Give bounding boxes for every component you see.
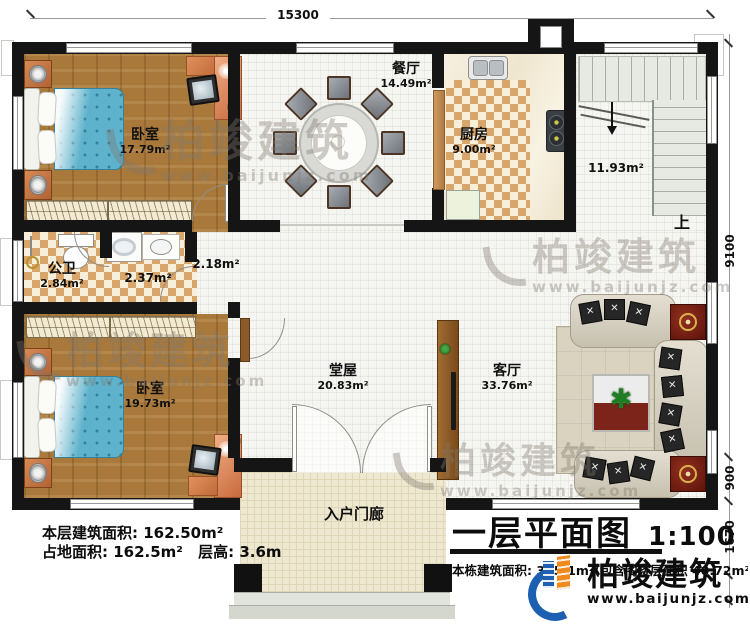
pillow: [37, 130, 57, 165]
sofa-cushion: [661, 375, 684, 398]
brand-text: 柏竣建筑 www.baijunjz.com: [587, 558, 750, 607]
stats-land-area: 占地面积: 162.5m²: [42, 543, 183, 561]
wardrobe: [110, 316, 196, 338]
room-name: 堂屋: [306, 364, 380, 380]
stats-storey-height: 层高: 3.6m: [198, 543, 281, 561]
wardrobe: [26, 200, 108, 222]
room-label-porch: 入户门廊: [298, 506, 410, 523]
room-label-kitchen: 厨房 9.00m²: [442, 128, 506, 156]
logo-swoosh-icon: [521, 560, 589, 628]
room-label-hall: 堂屋 20.83m²: [306, 364, 380, 392]
window: [707, 76, 717, 144]
room-name: 餐厅: [376, 62, 436, 78]
dimension-label-top: 15300: [266, 8, 330, 22]
sofa-cushion: [607, 461, 631, 485]
pillow: [37, 418, 57, 453]
dining-chair: [327, 76, 351, 100]
brand-website: www.baijunjz.com: [587, 593, 750, 607]
vanity-sink: [142, 234, 180, 260]
nightstand-lamp: [24, 60, 52, 88]
pillow: [37, 92, 57, 127]
towel-bar: [30, 236, 32, 256]
room-label-dining: 餐厅 14.49m²: [376, 62, 436, 90]
side-table: [670, 456, 706, 492]
door-leaf: [240, 318, 250, 362]
window: [66, 43, 192, 53]
dining-chair: [381, 131, 405, 155]
room-name: 卧室: [114, 382, 186, 398]
room-area: 2.18m²: [190, 258, 242, 271]
dimension-line-top: [30, 18, 714, 19]
room-name: 客厅: [470, 364, 544, 380]
room-label-bedroom-top: 卧室 17.79m²: [110, 128, 180, 156]
nightstand-lamp: [24, 458, 52, 488]
window: [13, 240, 23, 302]
window: [296, 43, 394, 53]
stats-block: 本层建筑面积: 162.50m² 占地面积: 162.5m² 层高: 3.6m: [42, 524, 282, 562]
wall: [228, 302, 240, 318]
stairs-right-flight: [652, 100, 708, 216]
computer-monitor: [188, 444, 222, 476]
room-area: 33.76m²: [470, 380, 544, 392]
coffee-table: [592, 374, 650, 432]
brand-logo-icon: [527, 553, 581, 611]
wall: [430, 458, 446, 472]
pillow: [37, 380, 57, 415]
floor-plan-canvas: 卧室 17.79m² 餐厅 14.49m² 厨房 9.00m² 11.93m² …: [0, 0, 750, 628]
fridge: [446, 190, 480, 220]
wall: [564, 42, 576, 232]
room-label-bathroom: 公卫 2.84m²: [34, 262, 90, 290]
window: [70, 499, 194, 509]
room-area: 2.37m²: [120, 272, 176, 285]
stove-burner: [549, 115, 564, 130]
sofa-cushion: [659, 347, 683, 371]
flue-opening: [540, 26, 562, 48]
porch-step: [229, 605, 455, 619]
logo-building-orange-icon: [557, 555, 570, 590]
stairs-arrow: [611, 102, 613, 126]
computer-monitor: [186, 74, 220, 106]
tv: [451, 372, 456, 430]
dimension-label-right-main: 9100: [723, 229, 737, 273]
sofa-cushion: [660, 428, 685, 453]
brand-logo: 柏竣建筑 www.baijunjz.com: [527, 553, 750, 611]
window: [13, 382, 23, 458]
wardrobe: [108, 200, 192, 222]
wall: [228, 358, 240, 458]
nightstand-lamp: [24, 348, 52, 376]
nightstand-lamp: [24, 170, 52, 200]
room-area: 14.49m²: [376, 78, 436, 90]
room-area: 2.84m²: [34, 278, 90, 290]
window: [707, 430, 717, 474]
wall: [228, 42, 240, 232]
room-area: 17.79m²: [110, 144, 180, 156]
stats-line2: 占地面积: 162.5m² 层高: 3.6m: [42, 543, 282, 562]
sink-basin: [473, 60, 488, 76]
desk: [188, 476, 218, 496]
stats-floor-area: 本层建筑面积: 162.50m²: [42, 524, 282, 543]
plant-icon: [440, 344, 450, 354]
scale-label: 1:100: [648, 522, 736, 552]
dining-chair: [273, 131, 297, 155]
room-area: 9.00m²: [442, 144, 506, 156]
sofa-cushion: [578, 300, 602, 324]
porch-column: [234, 564, 262, 592]
wardrobe: [26, 316, 110, 338]
sink-basin: [489, 60, 504, 76]
window: [707, 282, 717, 344]
table-center: [331, 135, 345, 149]
sofa-cushion: [604, 299, 625, 320]
room-name: 厨房: [442, 128, 506, 144]
opening-threshold: [280, 224, 404, 226]
room-area: 20.83m²: [306, 380, 380, 392]
porch-step: [234, 592, 450, 606]
wall: [100, 232, 112, 258]
window: [13, 96, 23, 170]
wall: [12, 302, 197, 314]
sofa-cushion: [626, 301, 651, 326]
room-label-living: 客厅 33.76m²: [470, 364, 544, 392]
wall: [12, 220, 192, 232]
sofa-cushion: [582, 456, 606, 480]
room-area: 19.73m²: [114, 398, 186, 410]
wall: [234, 458, 292, 472]
room-label-laundry: 2.37m²: [120, 272, 176, 285]
room-area: 11.93m²: [582, 162, 650, 175]
stairs-up-label: 上: [668, 214, 696, 232]
stairs-upper-flight: [578, 56, 706, 102]
sofa-cushion: [658, 402, 682, 426]
porch-column: [424, 564, 452, 592]
wall: [228, 220, 280, 232]
room-name: 卧室: [110, 128, 180, 144]
stove-burner: [549, 131, 564, 146]
wall: [404, 220, 432, 232]
logo-building-blue-icon: [543, 561, 554, 588]
brand-company: 柏竣建筑: [587, 558, 750, 590]
room-label-bedroom-bottom: 卧室 19.73m²: [114, 382, 186, 410]
room-name: 公卫: [34, 262, 90, 278]
dining-chair: [327, 185, 351, 209]
dimension-label-right-step: 900: [723, 460, 737, 496]
wall: [432, 220, 576, 232]
title-block: 一层平面图 1:100: [452, 506, 736, 555]
window: [604, 43, 698, 53]
page-title: 一层平面图: [452, 506, 632, 555]
stairs-arrow-head: [607, 126, 617, 135]
room-label-hallway: 2.18m²: [190, 258, 242, 271]
side-table: [670, 304, 706, 340]
entry-door-leaf: [292, 406, 297, 472]
room-label-stairs: 11.93m²: [582, 162, 650, 175]
